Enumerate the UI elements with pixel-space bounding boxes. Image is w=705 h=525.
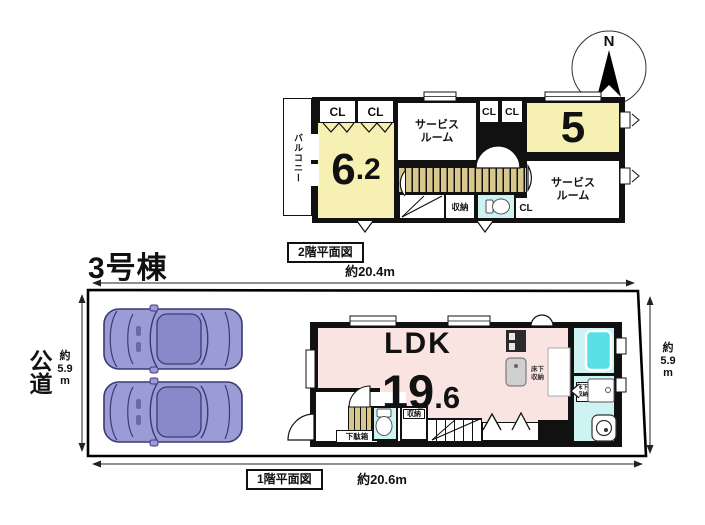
stair-diagonal — [432, 419, 480, 440]
stair-diagonal — [402, 196, 424, 217]
opening-mark — [483, 414, 501, 430]
opening-mark — [357, 221, 373, 232]
door-arc-2f-service — [528, 166, 531, 190]
washing-machine-icon — [592, 415, 616, 441]
door-arc-entrance — [288, 414, 314, 440]
window-2f-right-1 — [620, 112, 630, 128]
kitchen-counter — [548, 348, 570, 396]
balcony-door-gap — [310, 134, 319, 160]
bifold-door-marks — [503, 123, 517, 132]
bifold-door-marks — [361, 123, 392, 132]
window-2f-top-1 — [424, 92, 456, 101]
floor1-caption: 1階平面図 — [246, 469, 323, 490]
opening-mark — [477, 221, 493, 232]
opening-mark — [512, 413, 530, 430]
bifold-door-marks — [481, 123, 495, 132]
door-arc-hall — [349, 386, 370, 407]
window-1f-left — [306, 350, 315, 388]
window-2f-right-2 — [620, 168, 630, 184]
toilet-icon-1f — [376, 409, 392, 436]
kitchen-sink-icon — [506, 358, 526, 386]
opening-mark — [571, 384, 579, 398]
stair-diagonal — [432, 419, 456, 440]
window-swing-mark — [632, 170, 639, 182]
balcony-door-gap — [310, 164, 319, 186]
floor-plan-canvas: N バルコニー 6.2 CL CL サービスルーム CL CL 5 サービスルー… — [0, 0, 705, 525]
door-arc-2f-stairtop — [476, 146, 520, 168]
window-swing-mark — [632, 114, 639, 126]
window-1f-top-1 — [350, 316, 396, 326]
stair-diagonal — [402, 196, 442, 217]
washbasin-icon — [588, 379, 614, 402]
window-1f-right-1 — [616, 338, 626, 354]
bifold-door-marks — [323, 123, 354, 132]
door-arc-kitchen — [531, 315, 553, 326]
door-arc-2f-stairleft — [400, 171, 405, 196]
fixtures-layer — [0, 0, 705, 525]
window-1f-right-2 — [616, 378, 626, 392]
toilet-icon-2f — [486, 199, 510, 214]
floor1-width-dim: 約20.6m — [334, 470, 430, 486]
window-1f-top-2 — [448, 316, 490, 326]
window-2f-top-2 — [545, 92, 601, 101]
stove-icon — [506, 330, 526, 352]
bathtub — [586, 331, 611, 370]
